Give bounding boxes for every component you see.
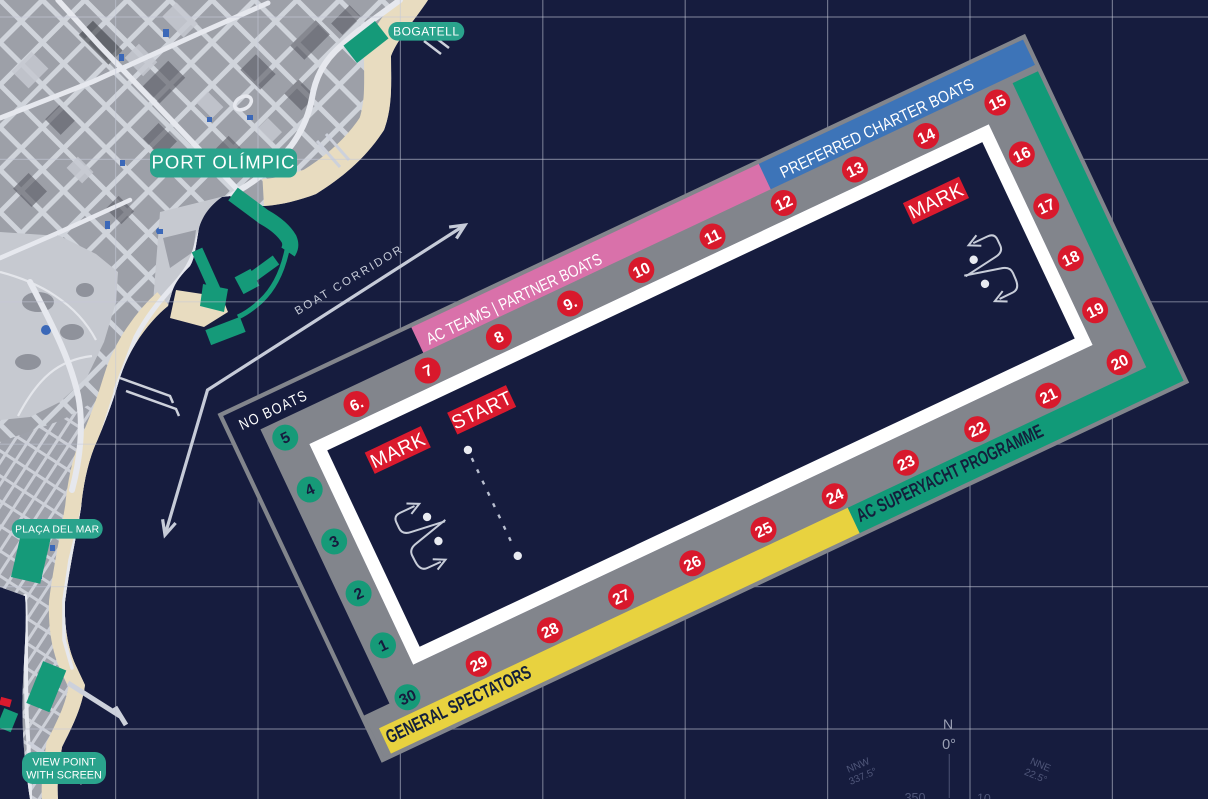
svg-text:BOGATELL: BOGATELL [393, 25, 459, 39]
svg-text:0°: 0° [942, 737, 956, 753]
svg-text:WITH SCREEN: WITH SCREEN [26, 770, 102, 782]
svg-text:PLAÇA DEL MAR: PLAÇA DEL MAR [15, 525, 99, 536]
svg-text:VIEW POINT: VIEW POINT [32, 757, 96, 769]
svg-text:10: 10 [976, 791, 991, 799]
svg-text:350: 350 [905, 791, 926, 799]
svg-text:N: N [943, 716, 953, 732]
svg-text:PORT OLÍMPIC: PORT OLÍMPIC [152, 152, 296, 173]
